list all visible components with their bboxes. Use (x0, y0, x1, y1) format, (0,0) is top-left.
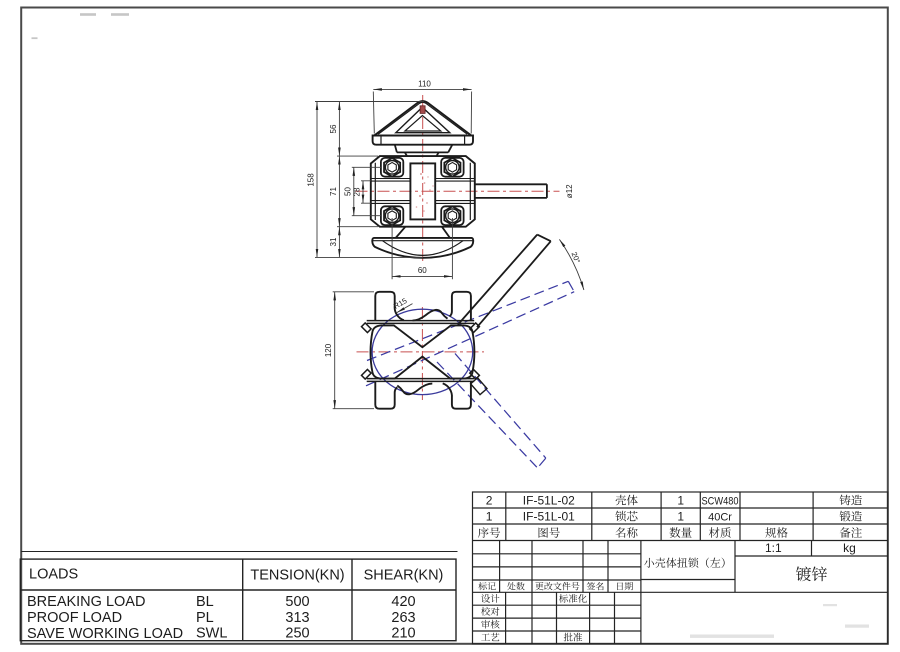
svg-text:50: 50 (343, 187, 352, 196)
svg-text:263: 263 (391, 610, 415, 626)
svg-text:110: 110 (418, 80, 431, 89)
svg-text:313: 313 (285, 610, 309, 626)
svg-text:1: 1 (677, 493, 684, 507)
svg-text:2: 2 (486, 493, 493, 507)
svg-text:SHEAR(KN): SHEAR(KN) (364, 568, 444, 584)
svg-text:LOADS: LOADS (29, 567, 78, 583)
svg-text:1:1: 1:1 (765, 541, 782, 555)
svg-text:TENSION(KN): TENSION(KN) (250, 568, 344, 584)
svg-text:500: 500 (285, 594, 309, 610)
svg-text:PL: PL (196, 610, 214, 626)
svg-text:20°: 20° (570, 251, 583, 265)
svg-text:60: 60 (418, 266, 427, 275)
svg-text:40Cr: 40Cr (708, 511, 732, 523)
svg-text:BL: BL (196, 594, 214, 610)
svg-text:28: 28 (353, 187, 362, 196)
svg-text:210: 210 (391, 626, 415, 642)
svg-text:71: 71 (329, 187, 338, 196)
svg-text:1: 1 (677, 509, 684, 523)
svg-text:BREAKING LOAD: BREAKING LOAD (27, 594, 145, 610)
svg-text:ø12: ø12 (565, 184, 574, 198)
svg-text:kg: kg (843, 541, 856, 555)
svg-text:IF-51L-02: IF-51L-02 (523, 493, 575, 507)
svg-text:SAVE WORKING LOAD: SAVE WORKING LOAD (27, 626, 183, 642)
svg-text:1: 1 (486, 509, 493, 523)
svg-text:IF-51L-01: IF-51L-01 (523, 509, 575, 523)
svg-text:158: 158 (307, 173, 316, 187)
svg-text:PROOF LOAD: PROOF LOAD (27, 610, 122, 626)
svg-text:250: 250 (285, 626, 309, 642)
svg-text:56: 56 (329, 124, 338, 133)
svg-text:SWL: SWL (196, 626, 227, 642)
svg-text:420: 420 (391, 594, 415, 610)
svg-text:SCW480: SCW480 (702, 495, 739, 507)
svg-text:31: 31 (329, 237, 338, 246)
svg-text:120: 120 (324, 343, 333, 357)
